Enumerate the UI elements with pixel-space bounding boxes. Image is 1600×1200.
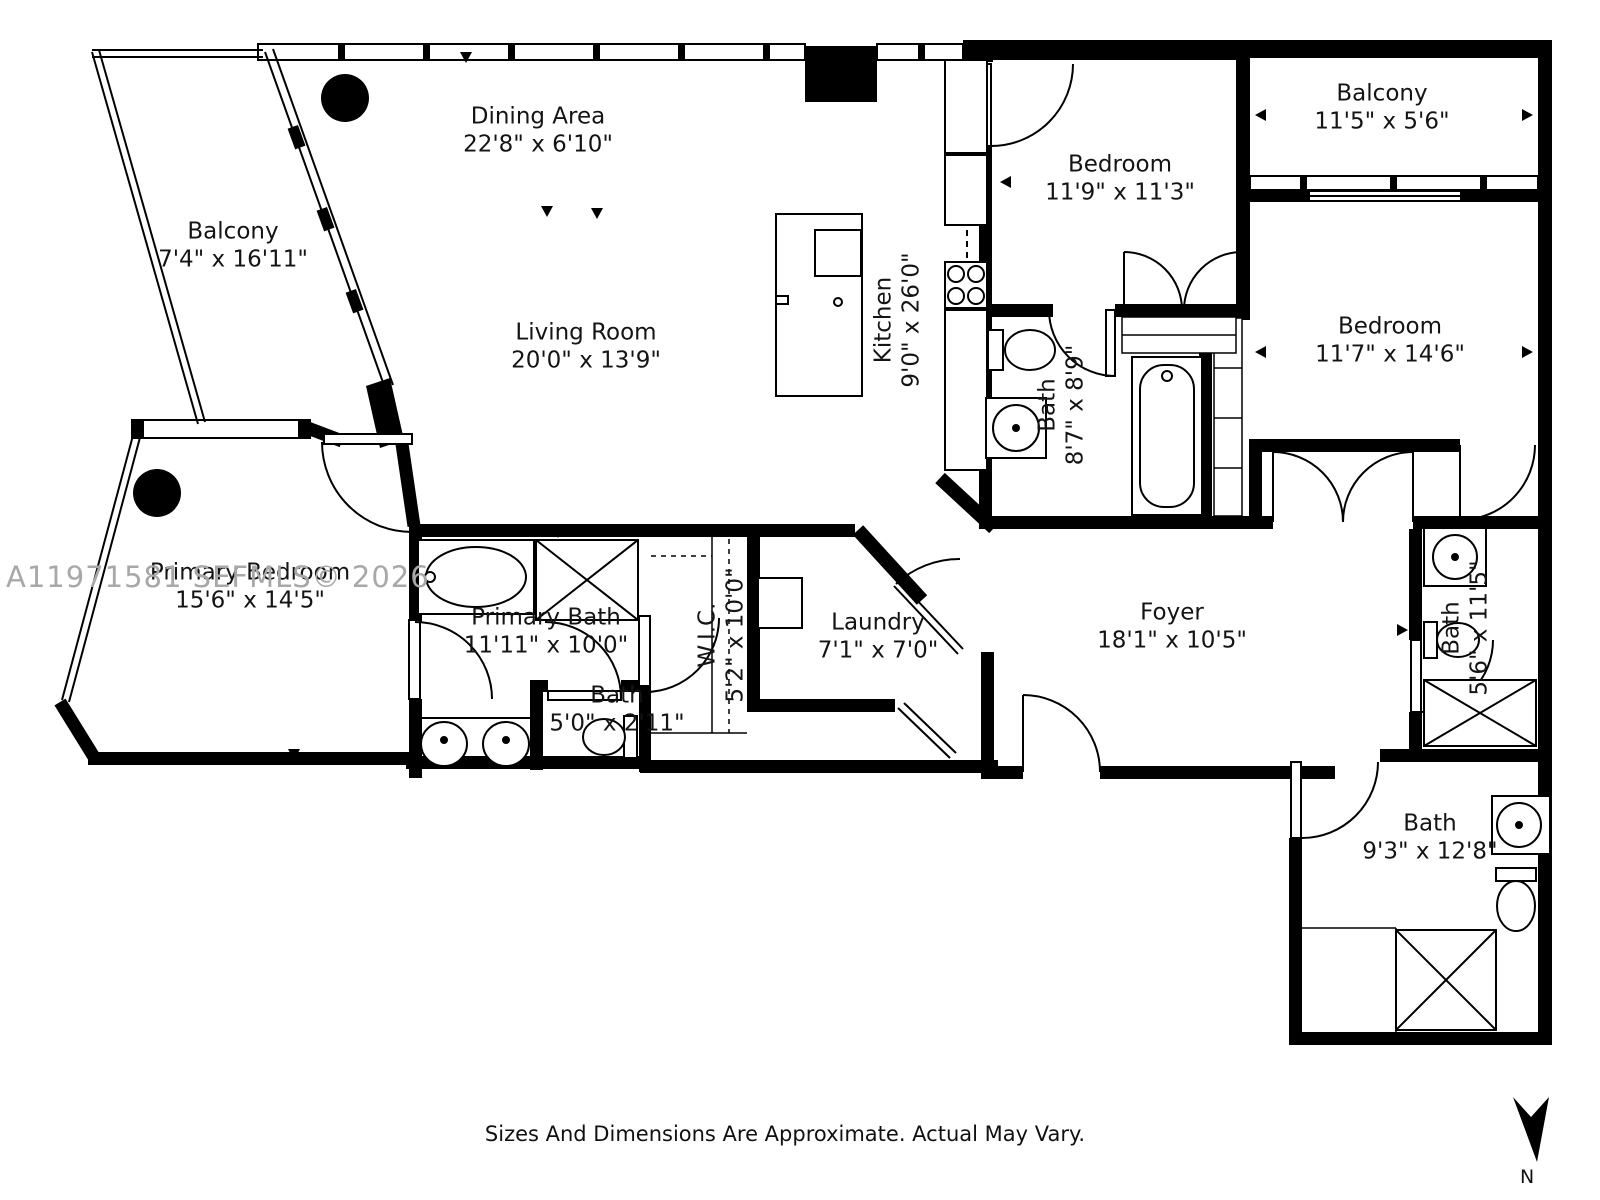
room-label-wic: W.I.C. 5'2" x 10'0" [694, 567, 749, 702]
floor-plan: Dining Area 22'8" x 6'10" Balcony 11'5" … [0, 0, 1600, 1200]
room-name: W.I.C. [694, 567, 722, 702]
room-label-dining: Dining Area 22'8" x 6'10" [463, 103, 613, 158]
room-dims: 5'6" x 11'5" [1466, 560, 1494, 695]
room-dims: 9'3" x 12'8" [1362, 838, 1497, 866]
room-dims: 22'8" x 6'10" [463, 131, 613, 159]
room-label-bedroom-top: Bedroom 11'9" x 11'3" [1045, 151, 1195, 206]
room-dims: 5'2" x 10'0" [722, 567, 750, 702]
room-label-foyer: Foyer 18'1" x 10'5" [1097, 599, 1247, 654]
room-dims: 7'4" x 16'11" [158, 246, 308, 274]
room-label-living: Living Room 20'0" x 13'9" [511, 319, 661, 374]
room-dims: 8'7" x 8'9" [1062, 345, 1090, 466]
room-dims: 18'1" x 10'5" [1097, 627, 1247, 655]
room-name: Bath [1438, 560, 1466, 695]
room-name: Bath [1034, 345, 1062, 466]
mls-watermark: A11971581 SEFMLS© 2026 [6, 560, 430, 594]
room-dims: 5'0" x 2'11" [549, 710, 684, 738]
room-label-bath-small: Bath 5'0" x 2'11" [549, 682, 684, 737]
ensuite-bath-fixtures [986, 330, 1202, 515]
room-dims: 11'5" x 5'6" [1314, 108, 1449, 136]
room-name: Foyer [1097, 599, 1247, 627]
room-label-balcony-top: Balcony 11'5" x 5'6" [1314, 80, 1449, 135]
room-label-kitchen: Kitchen 9'0" x 26'0" [870, 252, 925, 387]
room-dims: 7'1" x 7'0" [818, 637, 939, 665]
room-label-laundry: Laundry 7'1" x 7'0" [818, 609, 939, 664]
room-label-bath-bottom: Bath 9'3" x 12'8" [1362, 810, 1497, 865]
room-name: Bedroom [1315, 313, 1465, 341]
north-arrow-icon [1496, 1090, 1566, 1165]
room-label-balcony-left: Balcony 7'4" x 16'11" [158, 218, 308, 273]
washer-icon [758, 578, 802, 628]
room-label-bedroom-right: Bedroom 11'7" x 14'6" [1315, 313, 1465, 368]
room-dims: 9'0" x 26'0" [898, 252, 926, 387]
room-name: Balcony [158, 218, 308, 246]
kitchen-counters-icon [945, 60, 987, 470]
room-name: Dining Area [463, 103, 613, 131]
disclaimer-text: Sizes And Dimensions Are Approximate. Ac… [0, 1122, 1570, 1146]
north-compass: N [1496, 1090, 1566, 1190]
room-dims: 11'7" x 14'6" [1315, 341, 1465, 369]
room-name: Bedroom [1045, 151, 1195, 179]
room-name: Living Room [511, 319, 661, 347]
fixtures [412, 60, 1550, 1032]
room-label-primary-bath: Primary Bath 11'11" x 10'0" [464, 604, 628, 659]
room-dims: 11'11" x 10'0" [464, 632, 628, 660]
room-label-bath-right: Bath 5'6" x 11'5" [1438, 560, 1493, 695]
room-name: Primary Bath [464, 604, 628, 632]
kitchen-island-icon [776, 214, 862, 396]
room-name: Laundry [818, 609, 939, 637]
north-label: N [1520, 1166, 1534, 1188]
room-dims: 11'9" x 11'3" [1045, 179, 1195, 207]
room-label-bath-ensuite: Bath 8'7" x 8'9" [1034, 345, 1089, 466]
room-name: Bath [549, 682, 684, 710]
room-name: Balcony [1314, 80, 1449, 108]
room-name: Bath [1362, 810, 1497, 838]
room-name: Kitchen [870, 252, 898, 387]
room-dims: 20'0" x 13'9" [511, 347, 661, 375]
